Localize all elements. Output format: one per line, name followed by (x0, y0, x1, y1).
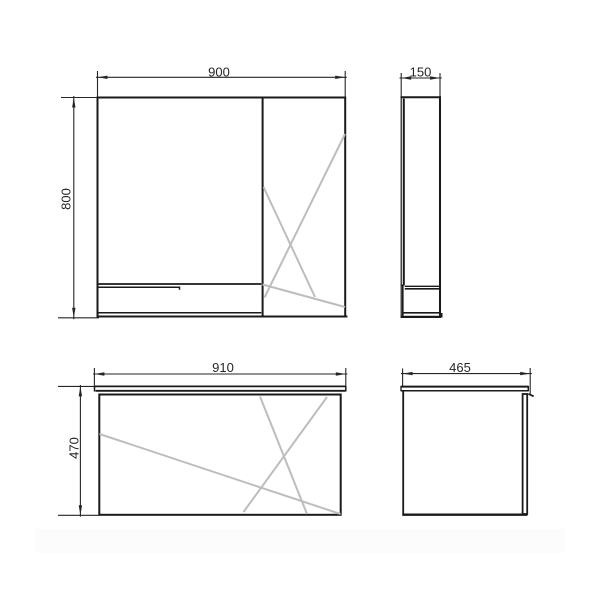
svg-text:470: 470 (66, 437, 81, 459)
svg-text:910: 910 (212, 360, 234, 375)
svg-text:465: 465 (449, 360, 471, 375)
svg-text:800: 800 (59, 188, 74, 210)
svg-text:900: 900 (208, 65, 230, 80)
svg-text:150: 150 (410, 64, 432, 79)
